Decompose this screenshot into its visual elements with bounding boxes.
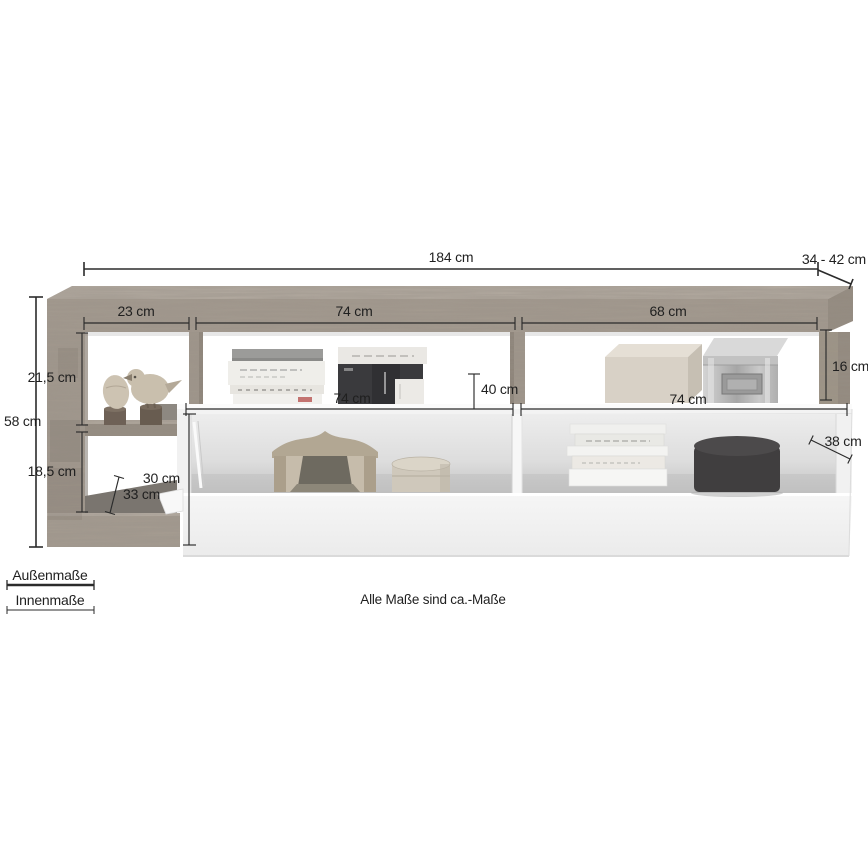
- books-dark-label: [344, 368, 353, 371]
- dim-74u-label: 74 cm: [335, 303, 372, 319]
- dim-33-label: 33 cm: [123, 486, 160, 502]
- book-flat-4-redmark: [298, 397, 312, 402]
- bird2-eye: [134, 376, 137, 379]
- books-dark-spine-text: [384, 372, 386, 394]
- measurement-note: Alle Maße sind ca.-Maße: [360, 592, 505, 607]
- theater-stage-floor: [290, 484, 360, 492]
- dim-depth-label: 34 - 42 cm: [802, 251, 866, 267]
- open-flap-front: [183, 493, 852, 557]
- metal-box-highlight2: [765, 358, 770, 403]
- left-inner-edge-upper: [85, 333, 88, 421]
- legend-outer-label: Außenmaße: [12, 567, 88, 583]
- left-inner-edge-lower: [85, 436, 88, 496]
- product-dimension-diagram: 184 cm 34 - 42 cm 23 cm 74 cm 68 cm 58 c…: [0, 0, 868, 868]
- wood-patch-1: [50, 420, 80, 462]
- wbook-5: [569, 469, 667, 486]
- bird2-pedestal-top: [140, 404, 162, 410]
- wbook-2: [575, 434, 664, 446]
- dim-total-width-label: 184 cm: [429, 249, 474, 265]
- dim-30-label: 30 cm: [143, 470, 180, 486]
- dim-16-label: 16 cm: [832, 358, 868, 374]
- book-flat-3: [230, 385, 324, 394]
- theater-column-right: [364, 456, 376, 492]
- body-top-surface: [177, 404, 852, 409]
- dim-23-label: 23 cm: [117, 303, 154, 319]
- wbook-1: [570, 424, 666, 434]
- pouf-top: [694, 436, 780, 456]
- legend-inner-label: Innenmaße: [15, 592, 84, 608]
- book-flat-1-edge: [232, 358, 323, 361]
- metal-box-plate-inner: [727, 379, 757, 390]
- lower-divider: [512, 414, 522, 493]
- round-box-shade: [440, 464, 450, 492]
- dim-68-label: 68 cm: [649, 303, 686, 319]
- dim-38-label: 38 cm: [824, 433, 861, 449]
- dim-74br-label: 74 cm: [669, 391, 706, 407]
- diagram-canvas: 184 cm 34 - 42 cm 23 cm 74 cm 68 cm 58 c…: [0, 0, 868, 868]
- wood-box-top: [605, 344, 702, 357]
- dim-40-label: 40 cm: [481, 381, 518, 397]
- wbook-3: [567, 446, 668, 456]
- furniture: [40, 280, 860, 560]
- dim-height-label: 58 cm: [4, 413, 41, 429]
- metal-box-highlight1: [708, 358, 714, 403]
- metal-box-top: [703, 338, 788, 356]
- book-light-front: [395, 379, 424, 404]
- book-flat-2: [228, 361, 325, 385]
- dim-185-label: 18,5 cm: [28, 463, 76, 479]
- dim-215-label: 21,5 cm: [28, 369, 76, 385]
- dim-74bl-label: 74 cm: [333, 390, 370, 406]
- theater-column-left: [274, 456, 286, 492]
